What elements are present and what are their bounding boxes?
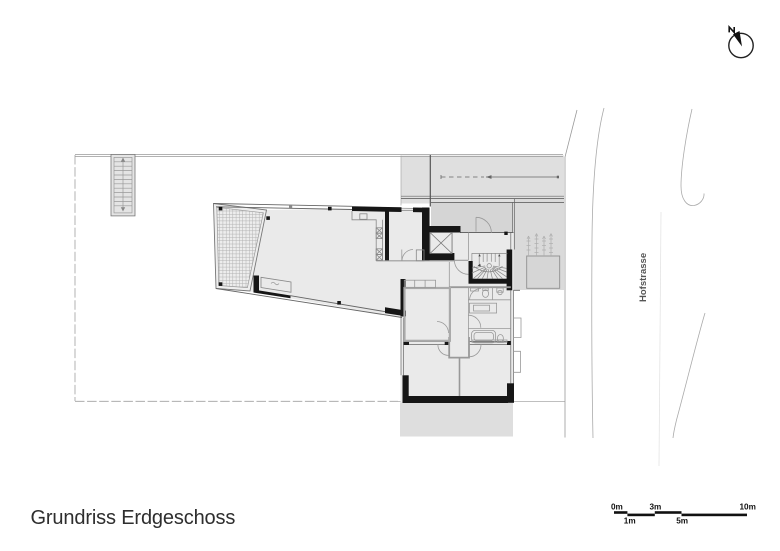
svg-text:3m: 3m bbox=[650, 503, 662, 512]
svg-text:10m: 10m bbox=[740, 503, 756, 512]
svg-text:5m: 5m bbox=[676, 517, 688, 526]
svg-text:Grundriss Erdgeschoss: Grundriss Erdgeschoss bbox=[31, 507, 236, 529]
svg-text:0m: 0m bbox=[611, 503, 623, 512]
svg-text:1m: 1m bbox=[624, 517, 636, 526]
svg-text:Hofstrasse: Hofstrasse bbox=[638, 253, 649, 302]
